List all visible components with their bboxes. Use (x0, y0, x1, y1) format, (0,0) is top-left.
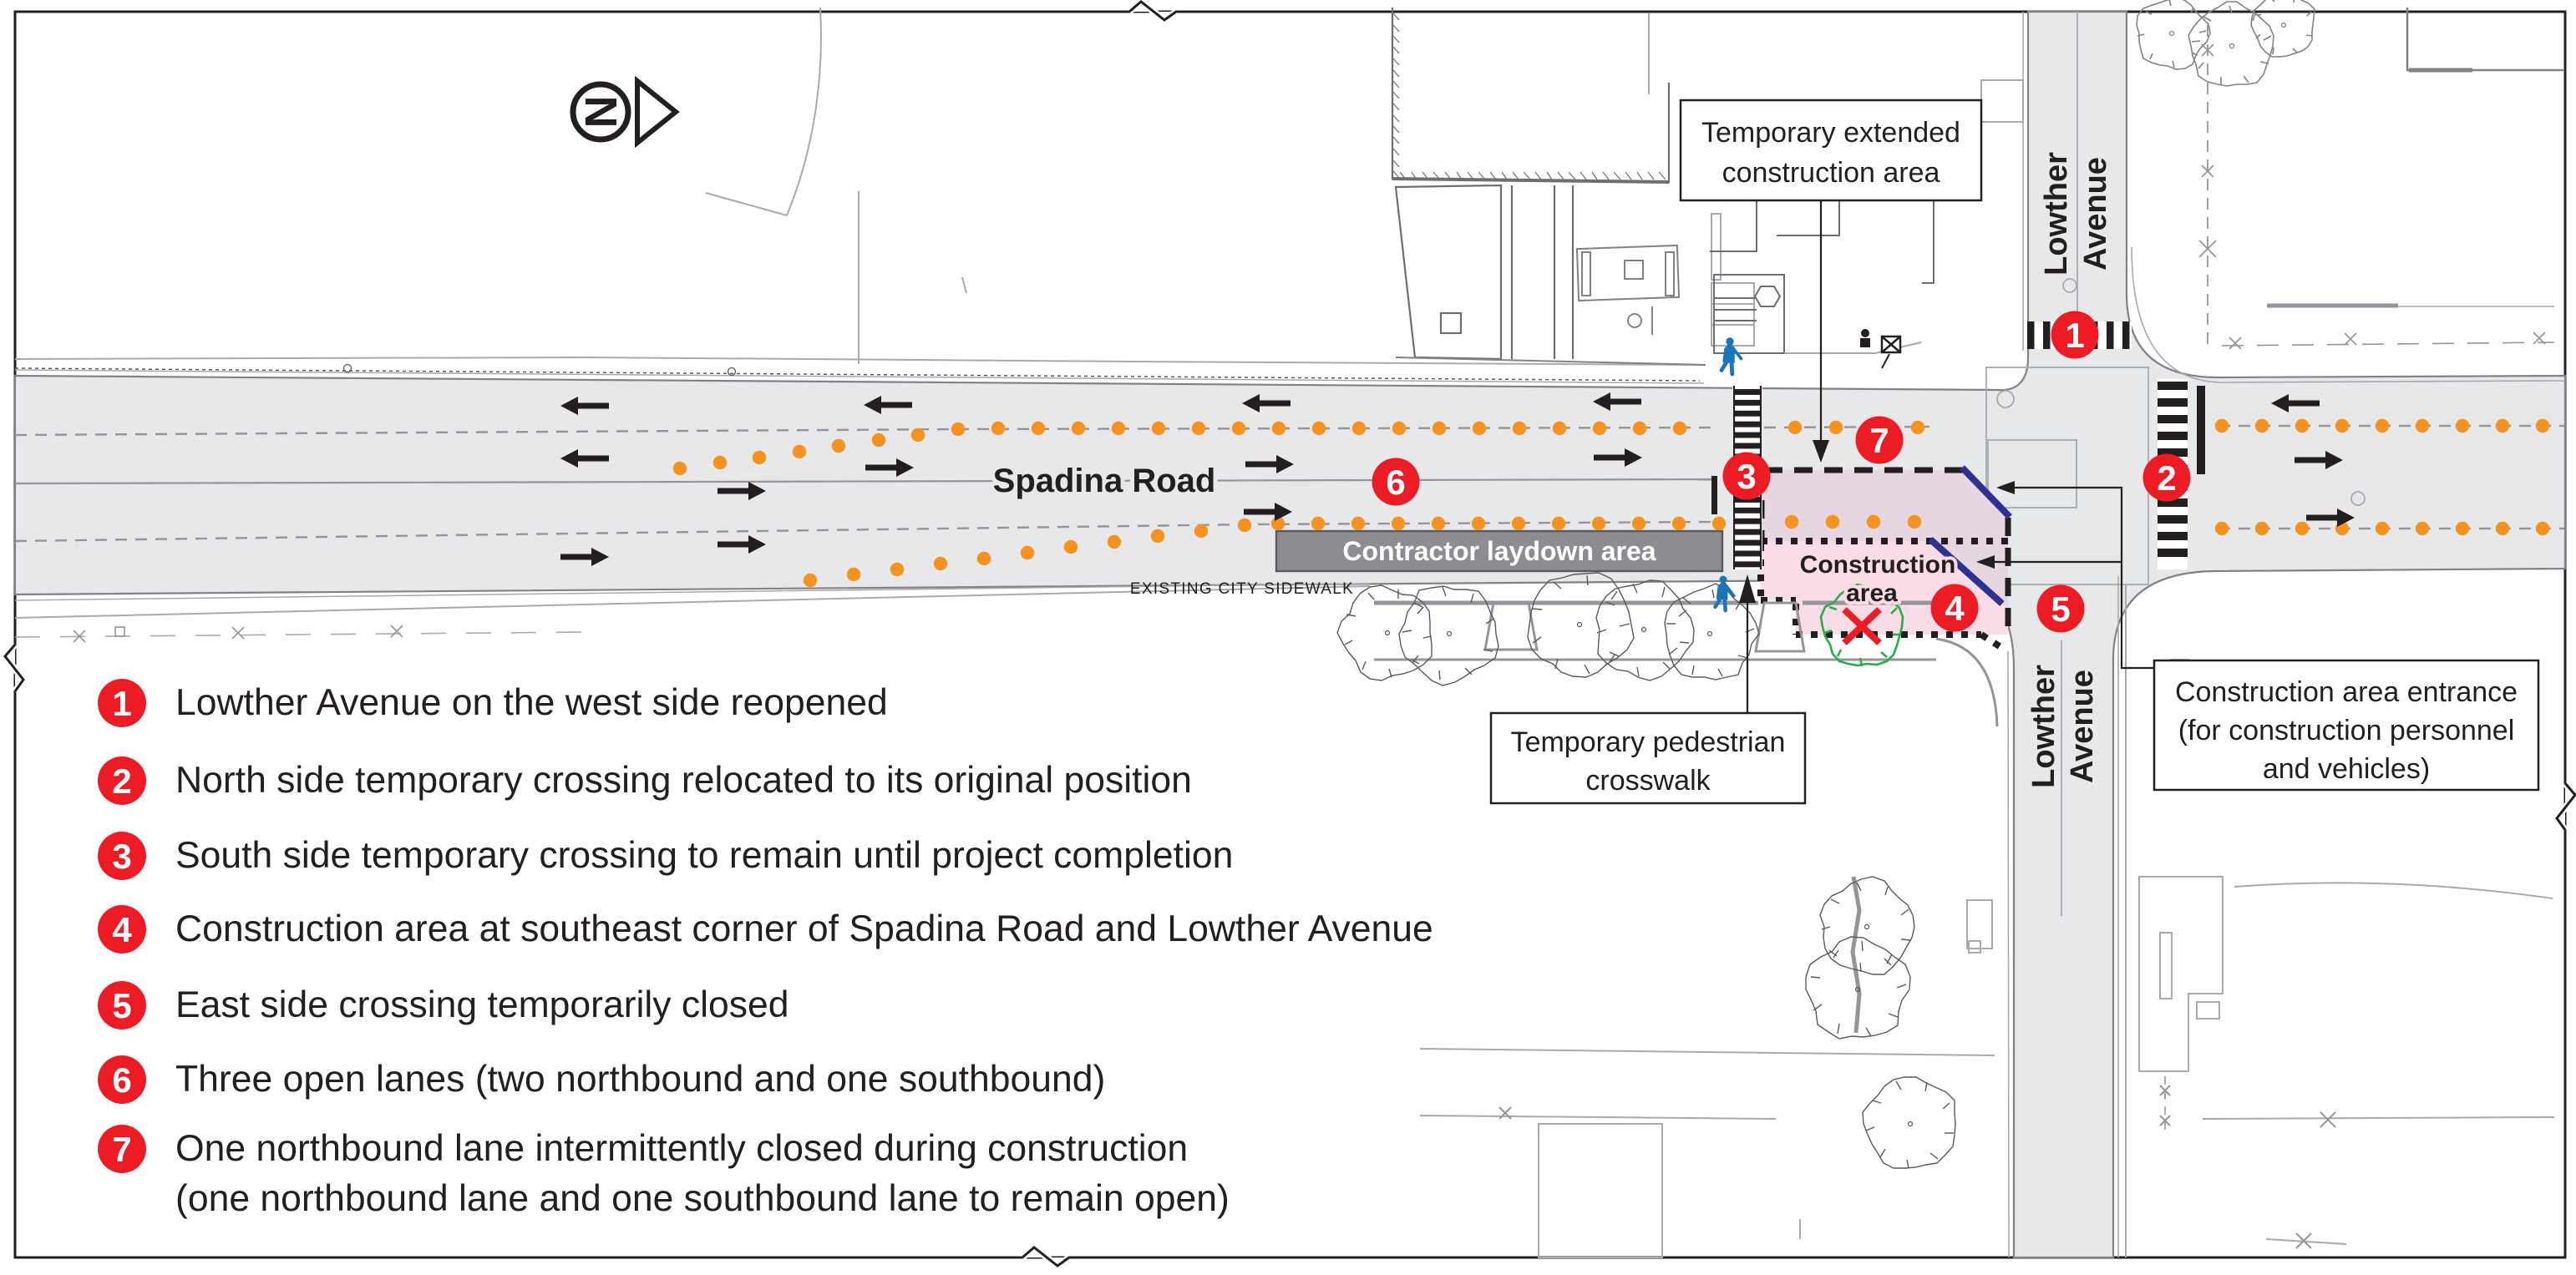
svg-text:N: N (576, 96, 626, 129)
svg-text:5: 5 (112, 986, 131, 1025)
svg-text:South side temporary crossing: South side temporary crossing to remain … (175, 835, 1233, 876)
svg-text:Lowther: Lowther (2039, 152, 2074, 276)
svg-text:Construction: Construction (1800, 551, 1956, 579)
svg-text:Temporary pedestrian: Temporary pedestrian (1511, 726, 1786, 758)
svg-text:3: 3 (112, 837, 131, 876)
svg-text:Lowther: Lowther (2026, 665, 2061, 788)
svg-text:One northbound lane intermitte: One northbound lane intermittently close… (175, 1128, 1188, 1169)
svg-text:2: 2 (2157, 458, 2176, 498)
svg-text:North side temporary crossing: North side temporary crossing relocated … (175, 760, 1192, 801)
svg-text:5: 5 (2051, 589, 2070, 629)
svg-text:and vehicles): and vehicles) (2263, 753, 2430, 785)
svg-text:Avenue: Avenue (2078, 157, 2113, 271)
svg-text:1: 1 (112, 684, 131, 723)
svg-text:Lowther Avenue on the west sid: Lowther Avenue on the west side reopened (175, 682, 888, 723)
svg-text:Construction area entrance: Construction area entrance (2175, 676, 2518, 708)
svg-text:6: 6 (1386, 463, 1405, 502)
svg-text:Temporary extended: Temporary extended (1701, 117, 1960, 149)
svg-text:(for construction personnel: (for construction personnel (2178, 715, 2515, 746)
svg-text:EXISTING CITY SIDEWALK: EXISTING CITY SIDEWALK (1130, 580, 1354, 598)
svg-text:East side crossing temporarily: East side crossing temporarily closed (175, 984, 789, 1025)
svg-text:4: 4 (1945, 589, 1965, 628)
svg-text:Three open lanes (two northbou: Three open lanes (two northbound and one… (175, 1059, 1105, 1100)
svg-text:4: 4 (112, 910, 132, 949)
svg-text:3: 3 (1737, 457, 1756, 496)
svg-text:1: 1 (2065, 316, 2084, 355)
svg-text:2: 2 (112, 761, 131, 801)
svg-text:Avenue: Avenue (2065, 670, 2100, 783)
svg-text:Contractor laydown area: Contractor laydown area (1342, 536, 1656, 566)
svg-text:6: 6 (112, 1060, 131, 1100)
svg-text:Spadina Road: Spadina Road (993, 463, 1216, 499)
svg-text:7: 7 (112, 1130, 131, 1169)
svg-text:(one northbound lane and one s: (one northbound lane and one southbound … (175, 1178, 1230, 1219)
svg-text:crosswalk: crosswalk (1585, 765, 1711, 797)
svg-text:7: 7 (1869, 421, 1889, 460)
svg-text:area: area (1846, 579, 1898, 607)
svg-text:Construction area at southeast: Construction area at southeast corner of… (175, 908, 1433, 949)
svg-text:construction area: construction area (1722, 157, 1940, 189)
